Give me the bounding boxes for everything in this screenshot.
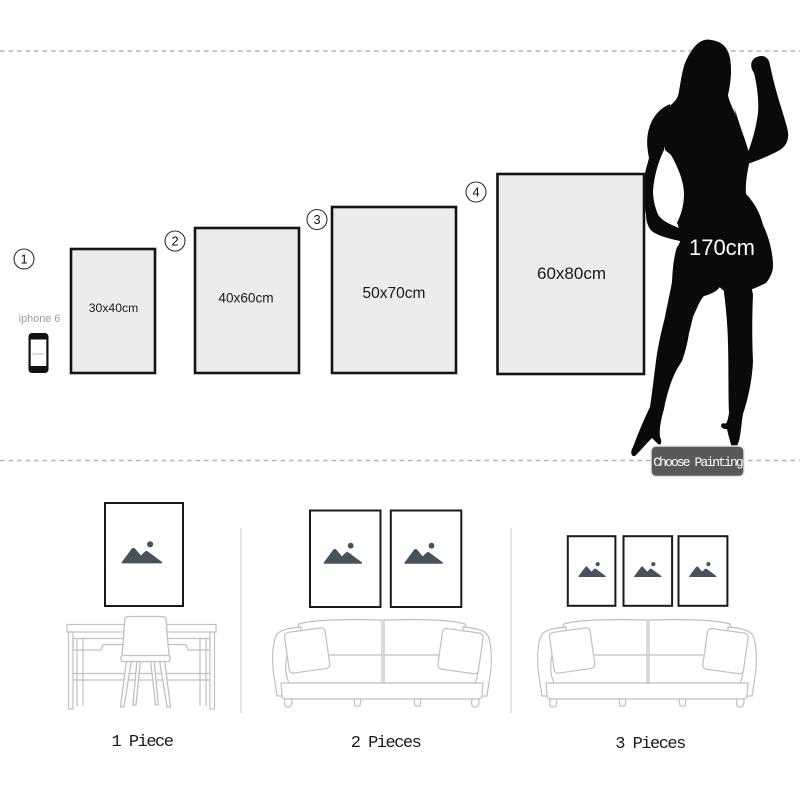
svg-text:3 Pieces: 3 Pieces — [615, 735, 685, 754]
svg-text:1 Piece: 1 Piece — [112, 733, 174, 752]
svg-text:1: 1 — [20, 252, 27, 267]
svg-text:40x60cm: 40x60cm — [218, 291, 273, 306]
svg-text:170cm: 170cm — [689, 235, 755, 260]
svg-text:2: 2 — [171, 234, 178, 249]
svg-text:30x40cm: 30x40cm — [89, 301, 138, 315]
svg-text:50x70cm: 50x70cm — [363, 285, 426, 302]
svg-text:60x80cm: 60x80cm — [537, 264, 606, 283]
svg-text:2 Pieces: 2 Pieces — [351, 734, 421, 753]
svg-text:iphone: iphone — [32, 351, 45, 356]
svg-text:4: 4 — [472, 185, 479, 200]
svg-text:Choose Painting: Choose Painting — [653, 455, 743, 470]
svg-text:3: 3 — [313, 212, 320, 227]
svg-text:iphone 6: iphone 6 — [19, 313, 60, 325]
